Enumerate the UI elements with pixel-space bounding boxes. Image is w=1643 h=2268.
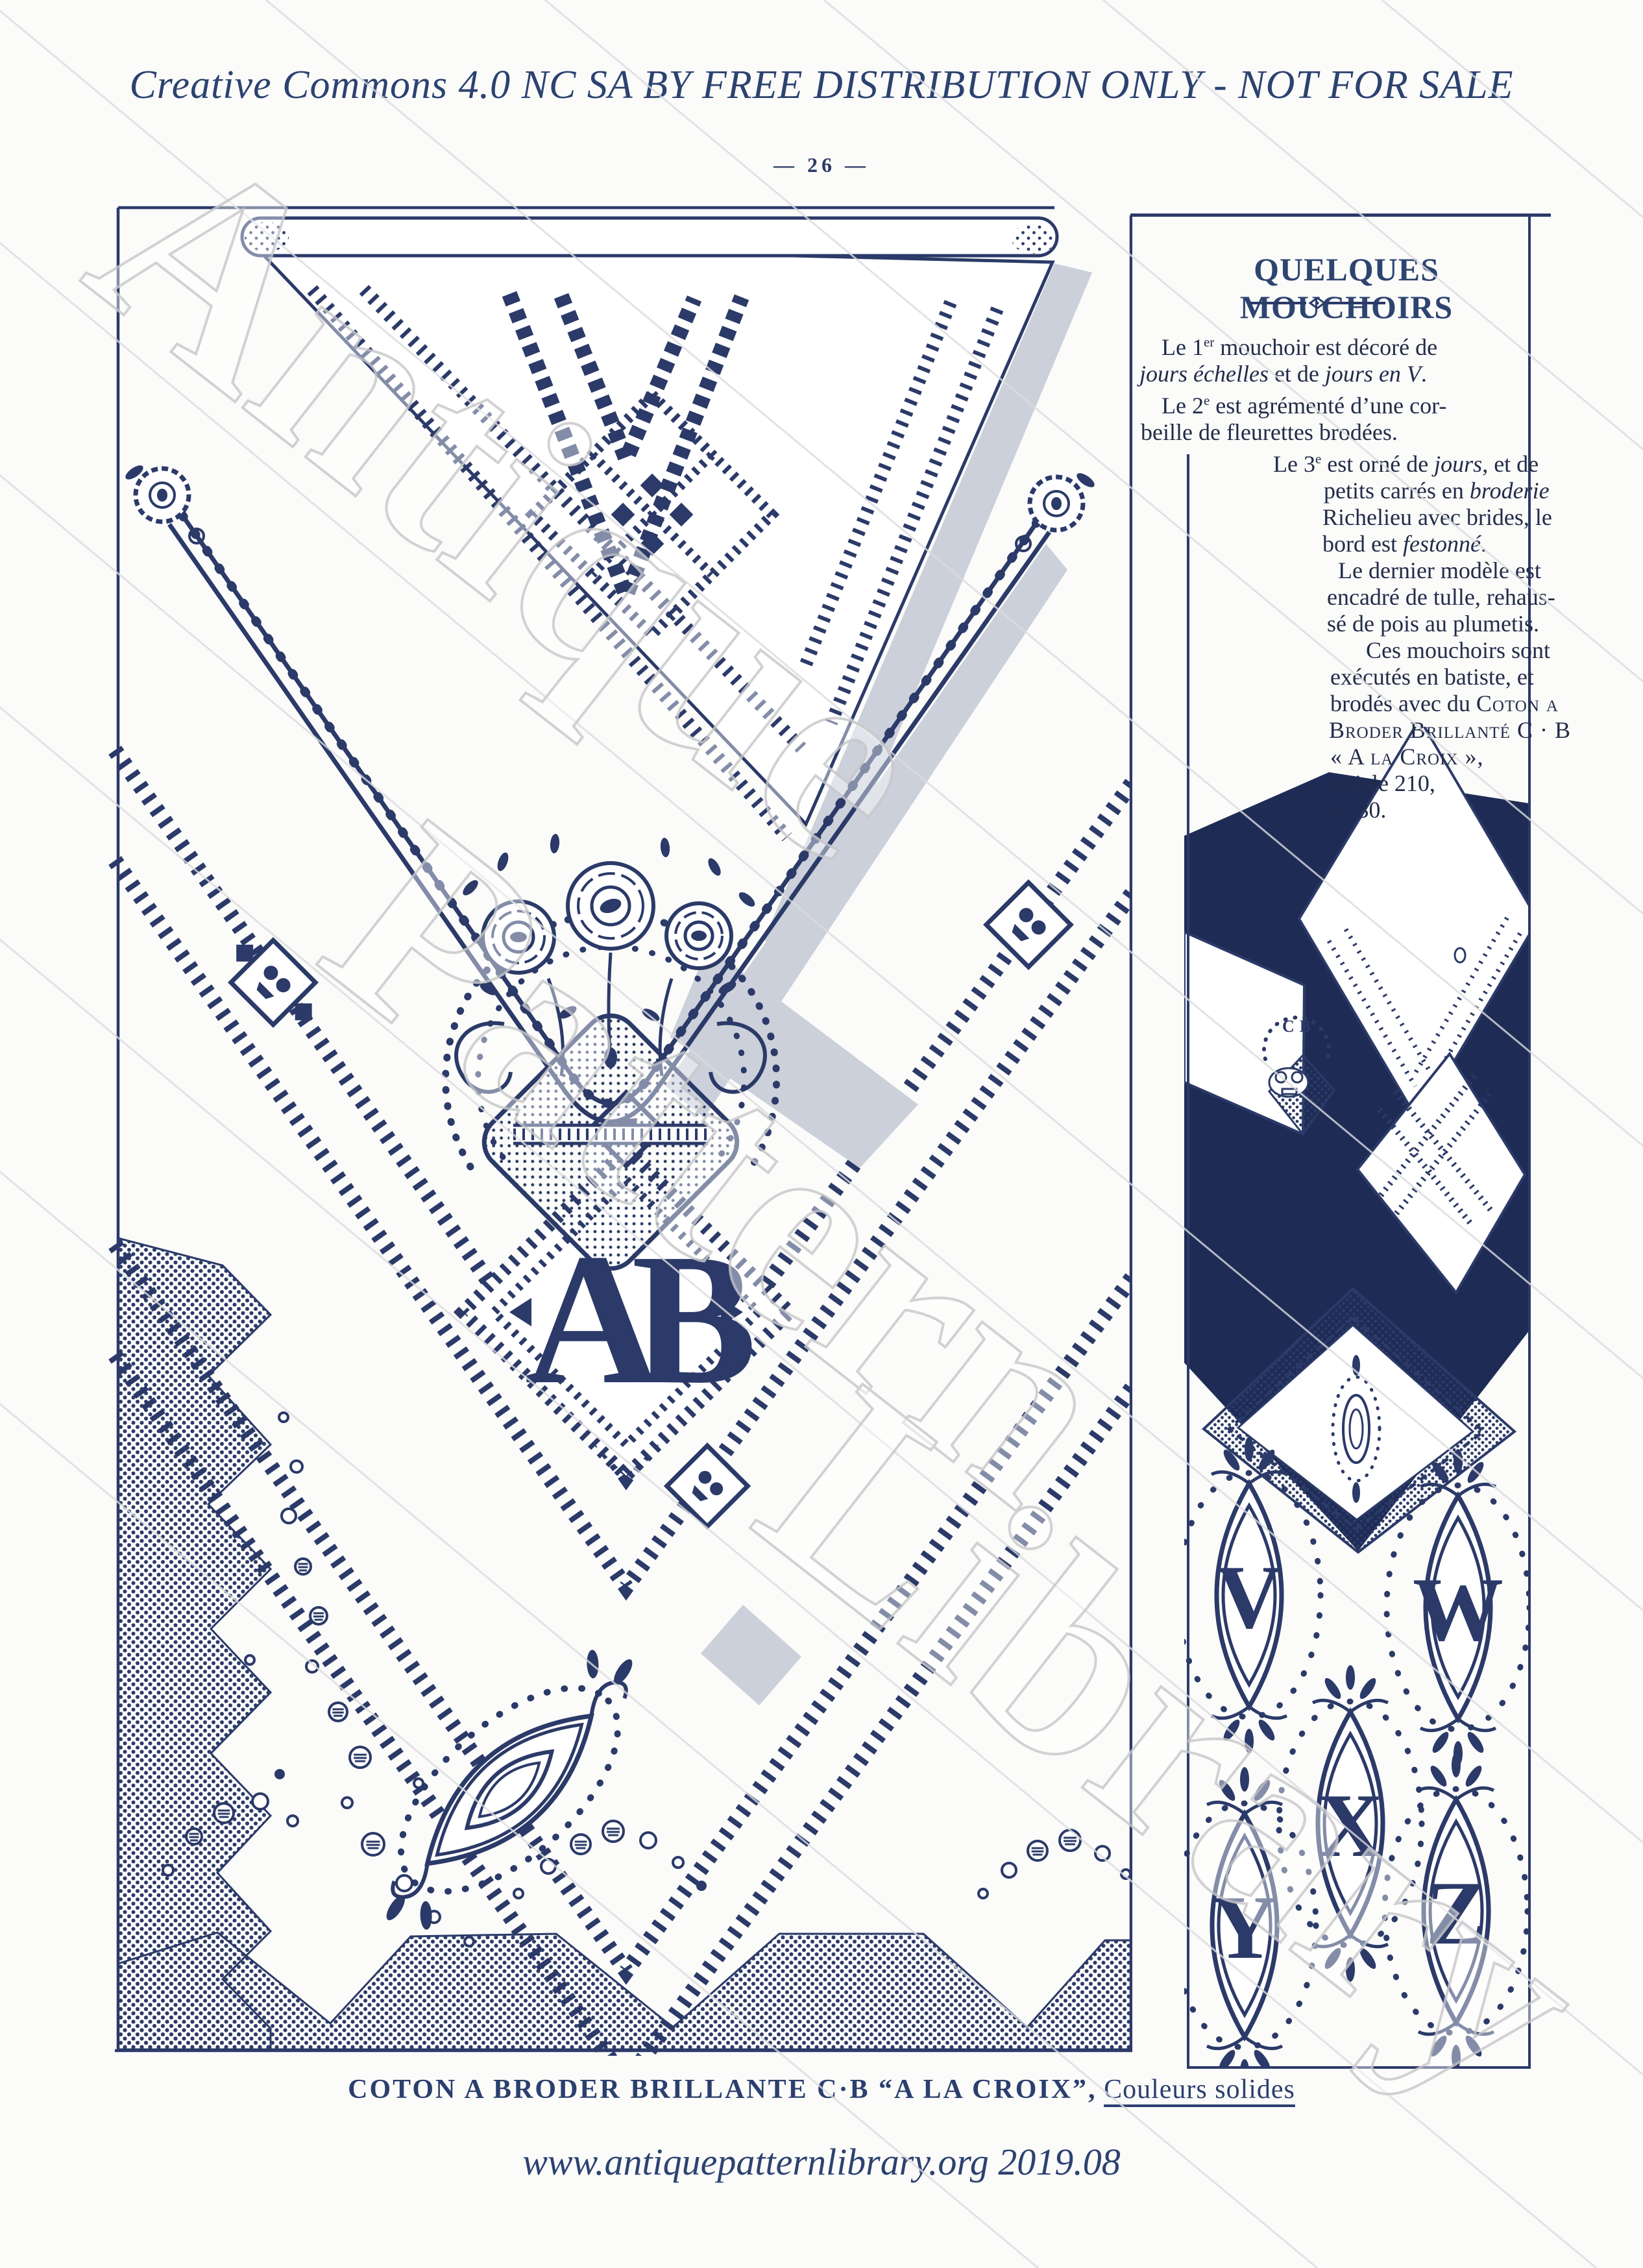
pois-dot (362, 1833, 384, 1855)
bottom-caption: COTON A BRODER BRILLANTE C·B “A LA CROIX… (0, 2074, 1643, 2105)
pois-dot (698, 1882, 705, 1890)
title-divider (1249, 297, 1385, 309)
text-segment: article 210, (1330, 770, 1435, 796)
pois-dot (245, 1655, 254, 1664)
text-segment: Le 1 (1162, 334, 1204, 360)
pois-dot (342, 1798, 352, 1808)
pois-dot (291, 1461, 302, 1472)
text-segment: n° 30. (1330, 797, 1386, 823)
rose-center (568, 863, 653, 949)
monogram-letter: Y (1211, 1877, 1277, 1978)
paragraph-line: exécutés en batiste, et (1330, 664, 1542, 690)
pois-dot (979, 1889, 988, 1898)
caption-product: COTON A BRODER BRILLANTE C·B “A LA CROIX… (348, 2075, 1097, 2104)
pois-dot (252, 1794, 268, 1809)
text-segment: bord est (1322, 531, 1403, 557)
text-segment: Broder Brillanté C · B (1329, 717, 1571, 743)
pois-dot (276, 1770, 284, 1778)
pois-dot (640, 1833, 656, 1848)
pois-dot (295, 1559, 311, 1574)
pois-dot (310, 1607, 327, 1624)
photo-panel-content: CB (1173, 727, 1535, 2067)
paragraph-3: Le 3e est orné de jours, et depetits car… (1139, 446, 1542, 557)
page-number: — 26 — (0, 153, 1643, 177)
text-segment: e (1204, 393, 1210, 408)
pois-dot (163, 1865, 173, 1875)
paragraph-line: Richelieu avec brides, le (1322, 504, 1542, 531)
pois-dot (282, 1509, 296, 1523)
text-segment: est orné de (1321, 451, 1434, 477)
text-segment: Coton a (1476, 690, 1559, 716)
paragraph-line: article 210, (1330, 770, 1542, 797)
text-segment: Richelieu avec brides, le (1322, 504, 1552, 530)
pois-dot (186, 1829, 202, 1844)
text-segment: broderie (1470, 478, 1550, 504)
article-body: Le 1er mouchoir est décoré dejours échel… (1139, 329, 1542, 823)
monogram-y: Y (1173, 1767, 1316, 2067)
photo-cb-mark: CB (1282, 1017, 1316, 1036)
text-segment: jours en V (1325, 361, 1421, 387)
text-segment: sé de pois au plumetis. (1327, 611, 1539, 637)
text-segment: Le 3 (1273, 451, 1315, 477)
text-segment: et de (1269, 361, 1325, 387)
monogram-z: Z (1385, 1753, 1527, 2067)
pois-dot (1121, 1870, 1130, 1879)
paragraph-line: encadré de tulle, rehaus- (1327, 584, 1542, 611)
license-header: Creative Commons 4.0 NC SA BY FREE DISTR… (0, 62, 1643, 108)
text-segment: beille de fleurettes brodées. (1141, 419, 1398, 445)
text-segment: encadré de tulle, rehaus- (1327, 584, 1555, 610)
pois-dot (603, 1821, 624, 1842)
paragraph-line: Le dernier modèle est (1338, 557, 1542, 584)
corner-rosette-left (123, 463, 204, 543)
column-bottom-rule (1187, 2066, 1531, 2069)
pois-dot (350, 1747, 371, 1768)
pois-dot (329, 1703, 347, 1721)
text-segment: er (1204, 334, 1214, 350)
article-title: QUELQUES MOUCHOIRS (1165, 250, 1528, 326)
pois-dot (1028, 1841, 1047, 1860)
pois-dot (214, 1803, 234, 1823)
text-segment: jours échelles (1139, 361, 1269, 387)
pois-dot (673, 1857, 683, 1868)
paragraph-4: Le dernier modèle estencadré de tulle, r… (1139, 557, 1542, 637)
paragraph-line: petits carrés en broderie (1324, 478, 1542, 504)
pois-dot (396, 1875, 412, 1891)
text-segment: Le 2 (1162, 393, 1204, 419)
pois-dot (306, 1661, 318, 1672)
text-segment: , et de (1482, 451, 1539, 477)
tulle-border-bottom (118, 1933, 1132, 2049)
handkerchief-photos-panel: CB (1167, 727, 1535, 2067)
paragraph-line: Le 3e est orné de jours, et de (1273, 446, 1542, 478)
paragraph-line: jours échelles et de jours en V. (1139, 361, 1542, 387)
rolled-hem (242, 218, 1057, 256)
rose-left (483, 901, 554, 973)
rose-right (666, 903, 731, 968)
text-segment: Le dernier modèle est (1338, 557, 1541, 583)
text-segment: jours (1434, 451, 1482, 477)
scanned-book-page: AB (0, 0, 1643, 2268)
text-segment: . (1421, 361, 1427, 387)
text-segment: Ces mouchoirs sont (1366, 637, 1550, 663)
pattern-drawing: AB (115, 208, 1132, 2056)
paragraph-line: Broder Brillanté C · B (1329, 717, 1542, 744)
paragraph-line: brodés avec du Coton a (1330, 690, 1542, 717)
text-segment: . (1481, 531, 1487, 557)
monogram-letter: V (1216, 1547, 1282, 1648)
monogram-x: X (1279, 1665, 1422, 1982)
text-segment: « A la Croix », (1330, 744, 1483, 770)
site-footer: www.antiquepatternlibrary.org 2019.08 (0, 2140, 1643, 2184)
tulle-border-left (118, 1238, 271, 2049)
paragraph-line: n° 30. (1330, 797, 1542, 823)
paragraph-line: beille de fleurettes brodées. (1141, 419, 1542, 446)
paragraph-1: Le 1er mouchoir est décoré dejours échel… (1139, 329, 1542, 387)
text-segment: festonné (1403, 531, 1481, 557)
column-top-rule (1130, 213, 1551, 217)
pois-dot (514, 1889, 523, 1898)
pois-dot (571, 1835, 590, 1854)
pois-dot (1095, 1846, 1110, 1860)
paragraph-line: sé de pois au plumetis. (1327, 611, 1542, 637)
text-segment: exécutés en batiste, et (1330, 664, 1534, 690)
text-segment: e (1315, 451, 1321, 467)
corner-rosette-right (1016, 470, 1097, 551)
paragraph-5: Ces mouchoirs sontexécutés en batiste, e… (1139, 637, 1542, 823)
paragraph-line: « A la Croix », (1330, 744, 1542, 770)
text-segment: brodés avec du (1330, 690, 1476, 716)
pois-dot (1002, 1863, 1016, 1877)
paragraph-2: Le 2e est agrémenté d’une cor-beille de … (1139, 387, 1542, 446)
text-segment: petits carrés en (1324, 478, 1470, 504)
text-segment: mouchoir est décoré de (1214, 334, 1437, 360)
oval-monogram-motif (332, 1621, 687, 1958)
text-segment: est agrémenté d’une cor- (1210, 393, 1446, 419)
pois-dot (279, 1413, 288, 1422)
handkerchief-pattern-illustration: AB (55, 180, 1132, 2056)
caption-colors: Couleurs solides (1104, 2075, 1295, 2104)
pois-dot (287, 1816, 298, 1826)
pois-dot (465, 1937, 474, 1946)
monogram-letter: Z (1426, 1863, 1486, 1964)
monogram-letter: W (1413, 1559, 1503, 1660)
pois-circles (163, 1413, 1130, 1946)
paragraph-line: bord est festonné. (1322, 531, 1542, 557)
pois-dot (1060, 1830, 1080, 1851)
paragraph-line: Le 2e est agrémenté d’une cor- (1162, 387, 1542, 419)
monogram-letter: X (1317, 1775, 1383, 1876)
paragraph-line: Ces mouchoirs sont (1366, 637, 1542, 664)
pois-dot (541, 1859, 555, 1873)
paragraph-line: Le 1er mouchoir est décoré de (1162, 329, 1542, 361)
